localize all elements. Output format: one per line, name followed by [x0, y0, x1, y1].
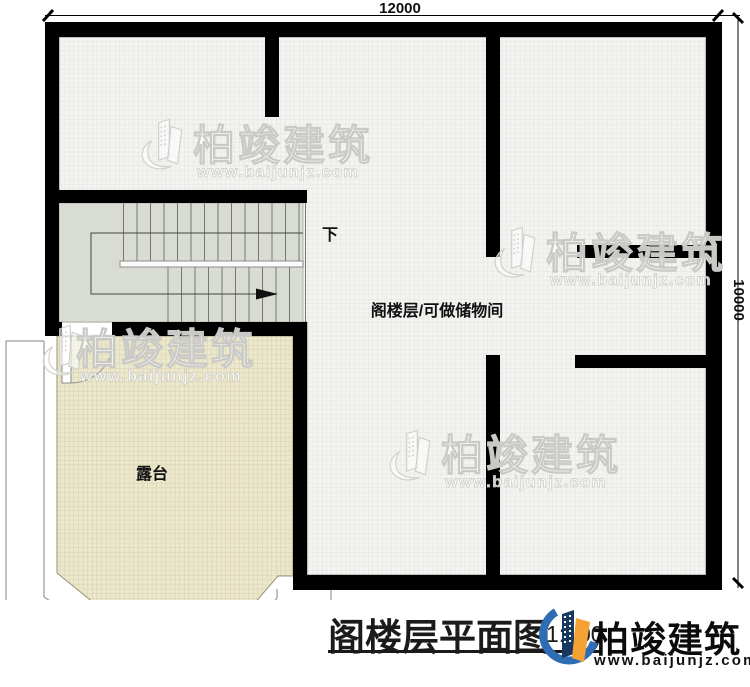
watermark-url-text: www.baijunjz.com — [79, 368, 242, 385]
watermark-url-text: www.baijunjz.com — [196, 164, 359, 181]
wall-stairroom-top — [45, 190, 307, 203]
floor-plan-page: 12000 10000 下 阁楼层/可做储物间 露台 柏竣建筑 www.baij… — [0, 0, 750, 687]
wall-exterior-top — [45, 22, 722, 37]
floor-plan-drawing: 12000 10000 下 阁楼层/可做储物间 露台 柏竣建筑 www.baij… — [0, 0, 750, 600]
dimension-top-value: 12000 — [379, 0, 421, 17]
wall-center-upper — [486, 37, 500, 257]
watermark-brand-text: 柏竣建筑 — [76, 326, 256, 373]
watermark-brand-text: 柏竣建筑 — [546, 230, 726, 277]
watermark-brand-text: 柏竣建筑 — [441, 432, 621, 479]
label-terrace: 露台 — [136, 464, 168, 483]
wall-terrace-right — [293, 322, 307, 590]
wall-stub-top-left — [265, 37, 279, 117]
wall-exterior-bottom — [293, 575, 722, 590]
dimension-right-value: 10000 — [730, 279, 747, 321]
label-stairs-down: 下 — [322, 227, 338, 244]
watermark-url-text: www.baijunjz.com — [444, 474, 607, 491]
wall-stub-right-lower — [575, 355, 706, 368]
watermark-brand-text: 柏竣建筑 — [193, 122, 373, 169]
wall-exterior-right — [706, 22, 722, 590]
staircase — [59, 203, 306, 322]
brand-url: www.baijunjz.com — [594, 652, 750, 669]
watermark-url-text: www.baijunjz.com — [549, 272, 712, 289]
stair-railing — [120, 261, 303, 267]
label-attic-room: 阁楼层/可做储物间 — [371, 301, 503, 320]
building-logo-icon — [536, 604, 598, 678]
wall-exterior-left — [45, 22, 59, 336]
logo-tower-navy — [562, 610, 574, 658]
